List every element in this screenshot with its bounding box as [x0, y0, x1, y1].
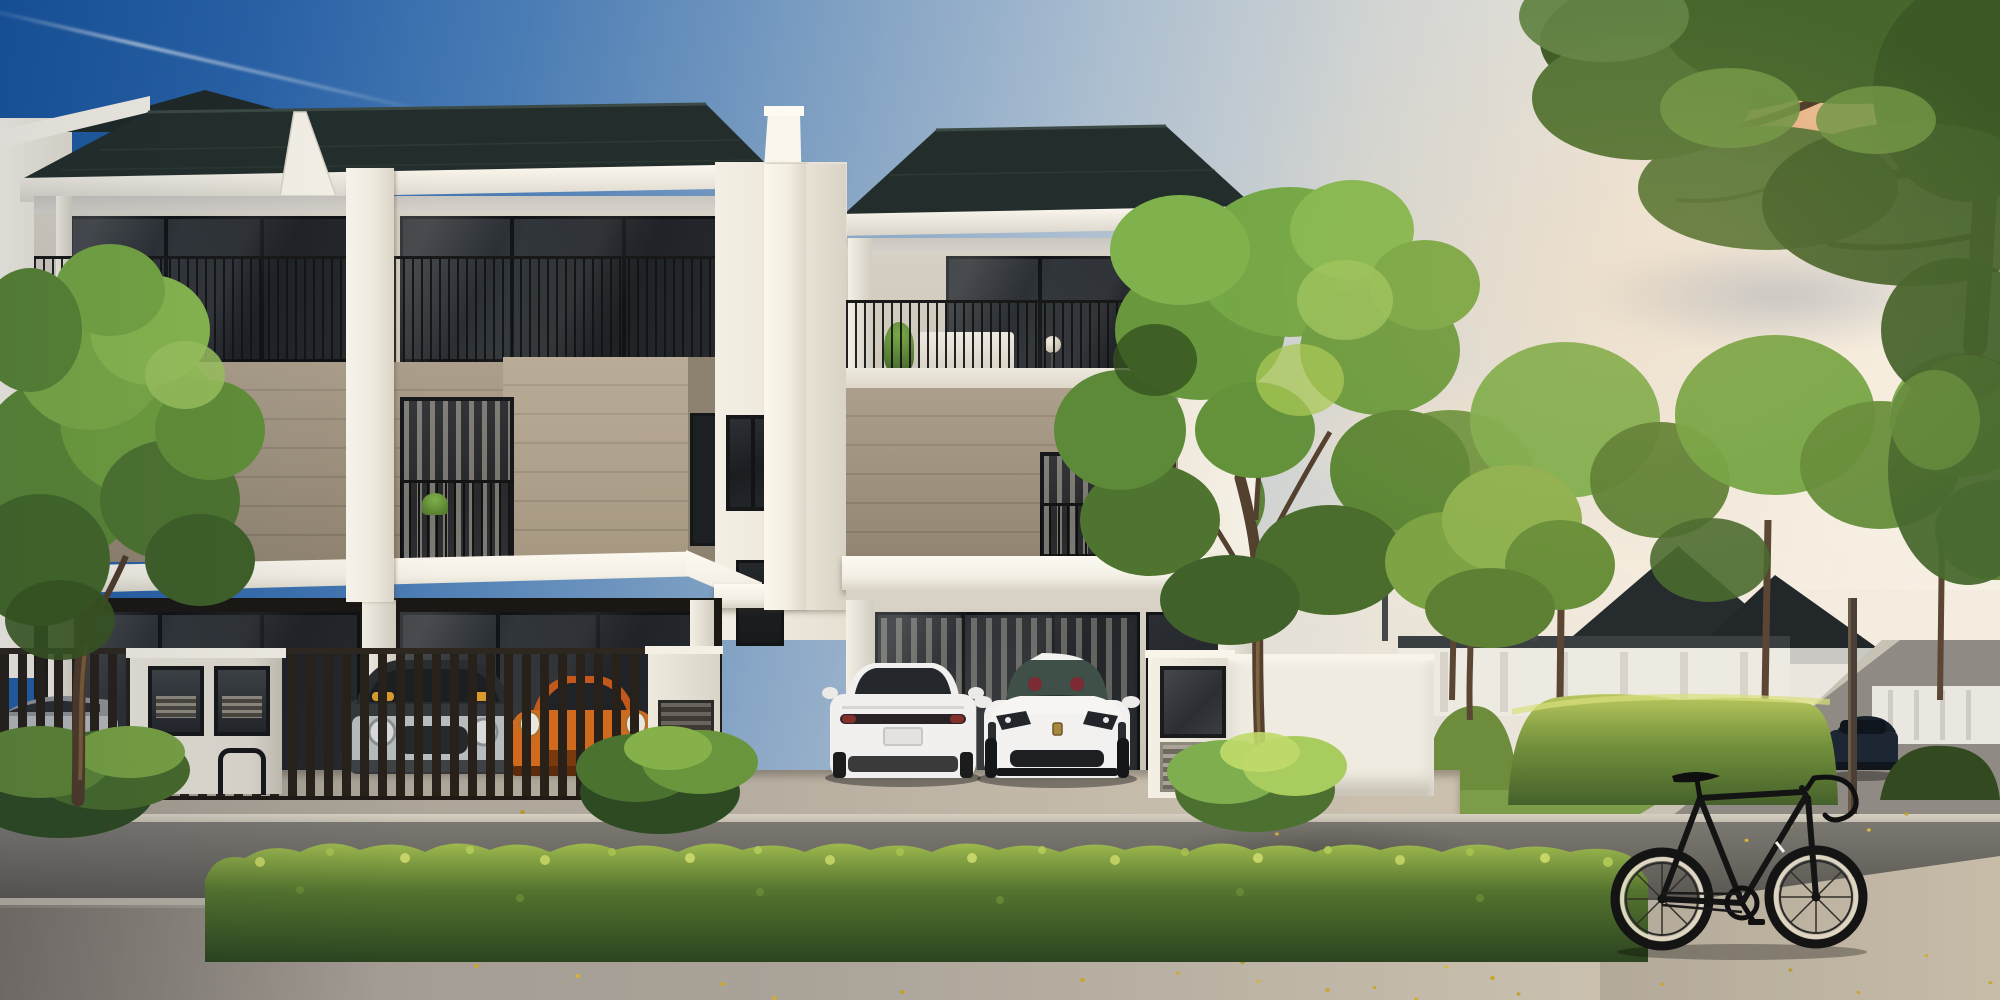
- rendered-scene: [0, 0, 2000, 1000]
- overhanging-branch: [0, 0, 2000, 1000]
- branch-foliage: [1519, 0, 2000, 585]
